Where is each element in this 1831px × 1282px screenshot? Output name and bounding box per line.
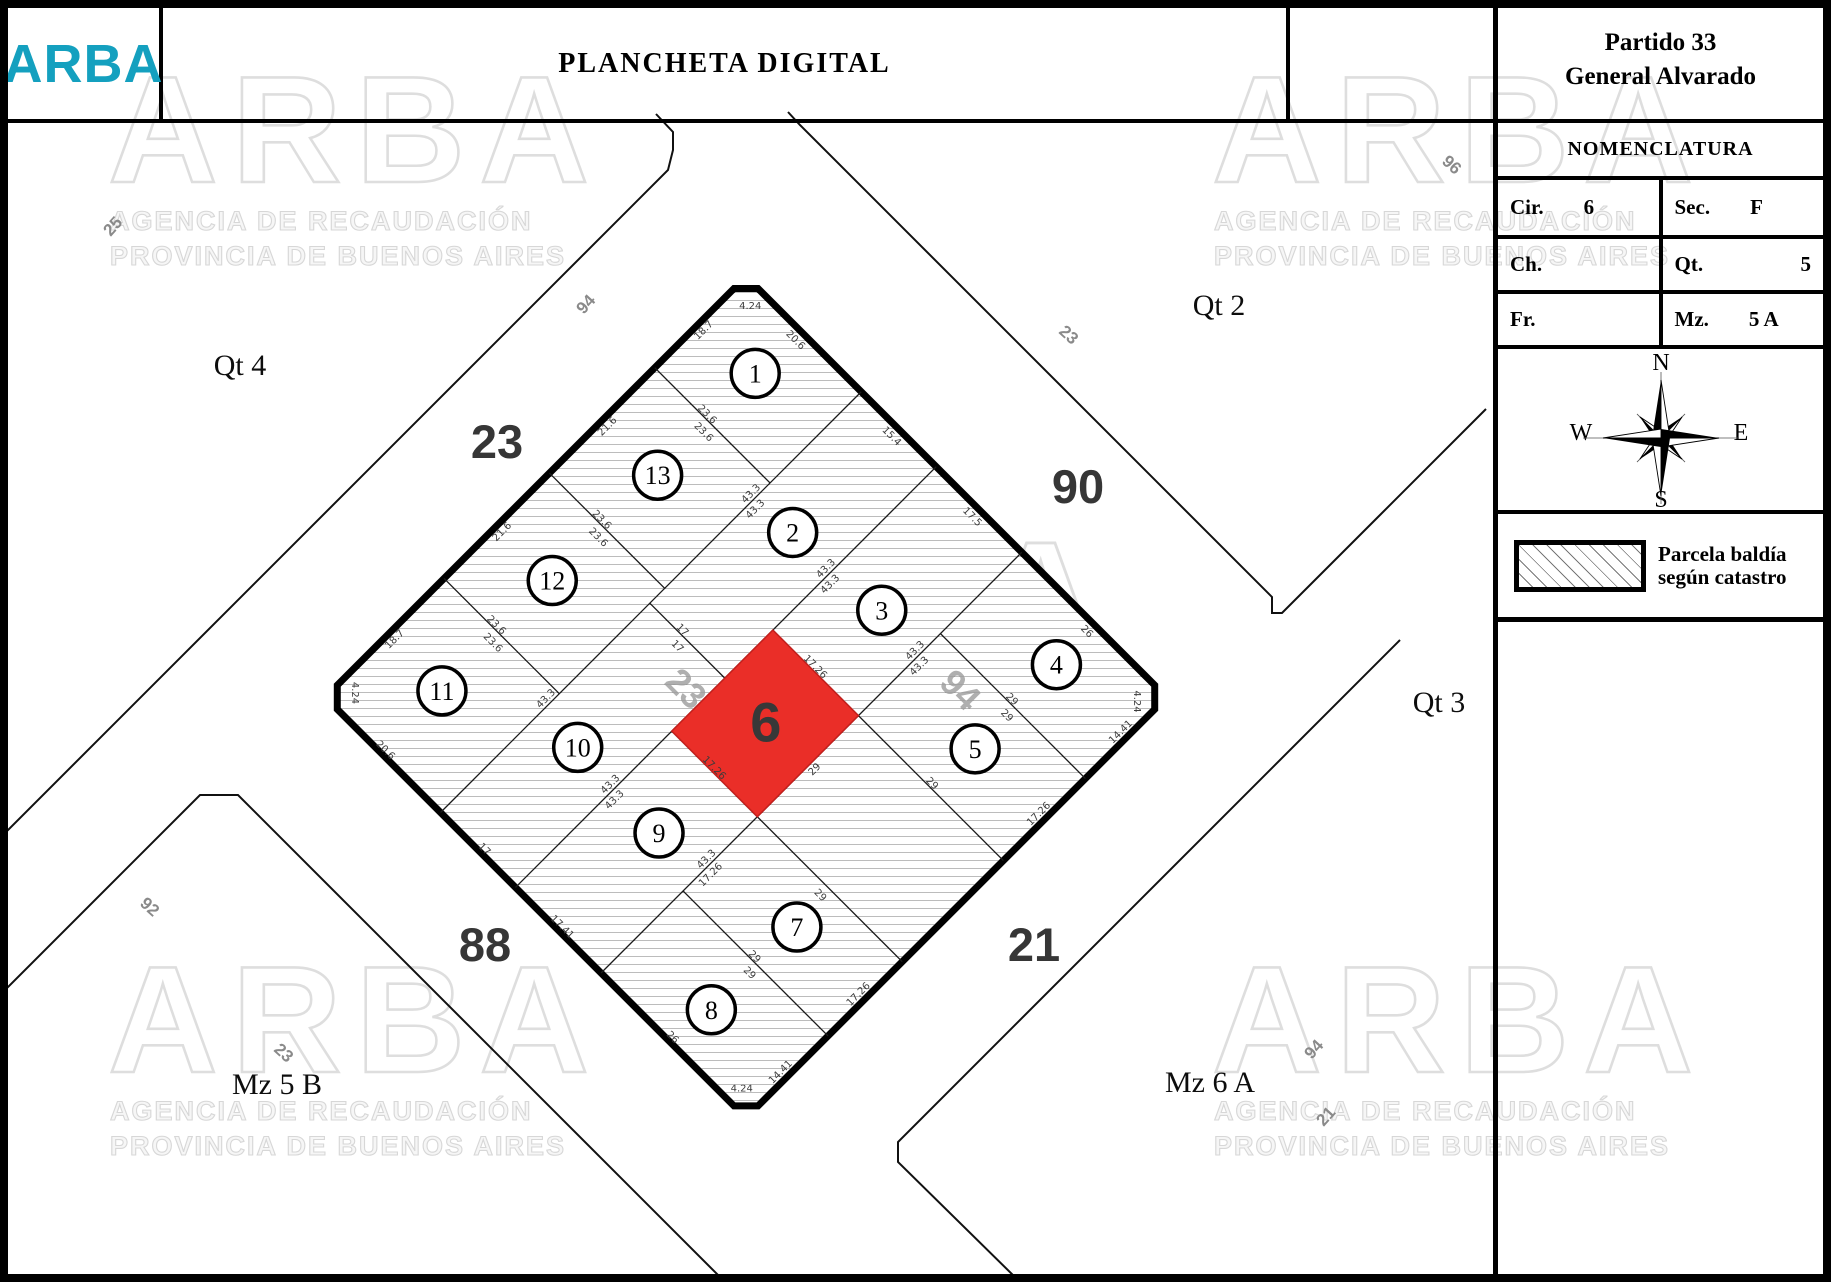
svg-text:3: 3 <box>875 596 888 625</box>
svg-text:5: 5 <box>969 735 982 764</box>
sec-value: F <box>1750 195 1763 220</box>
dimension-label: 4.24 <box>349 682 360 704</box>
street-label-92: 92 <box>136 894 163 921</box>
legend-label: Parcela baldía según catastro <box>1658 543 1787 589</box>
svg-text:13: 13 <box>645 461 671 490</box>
cir-value: 6 <box>1584 195 1595 220</box>
parcel-4: 4 <box>1032 641 1080 689</box>
svg-text:AGENCIA DE RECAUDACIÓN: AGENCIA DE RECAUDACIÓN <box>110 205 533 236</box>
svg-text:PROVINCIA DE BUENOS AIRES: PROVINCIA DE BUENOS AIRES <box>110 1131 566 1161</box>
street-number-23: 23 <box>471 415 523 468</box>
nomenclatura-table: Cir. 6 Sec. F Ch. Qt. 5 Fr. <box>1498 180 1823 349</box>
parcel-10: 10 <box>554 723 602 771</box>
parcel-2: 2 <box>769 508 817 556</box>
svg-text:2: 2 <box>786 518 799 547</box>
parcel-3: 3 <box>858 586 906 634</box>
parcel-8: 8 <box>687 986 735 1034</box>
parcel-9: 9 <box>635 809 683 857</box>
street-number-21: 21 <box>1008 918 1060 971</box>
parcel-5: 5 <box>951 725 999 773</box>
parcel-13: 13 <box>634 451 682 499</box>
page-title: PLANCHETA DIGITAL <box>558 48 890 80</box>
header-spacer <box>1290 8 1493 123</box>
sidebar-panel: Partido 33 General Alvarado NOMENCLATURA… <box>1493 8 1823 1274</box>
nomenclatura-header: NOMENCLATURA <box>1498 123 1823 180</box>
svg-text:9: 9 <box>653 819 666 848</box>
street-label-94: 94 <box>573 291 600 318</box>
cell-mz: Mz. 5 A <box>1659 290 1824 345</box>
svg-text:ARBA: ARBA <box>108 935 603 1105</box>
table-row: Cir. 6 Sec. F <box>1498 180 1823 235</box>
arba-logo: ARBA <box>4 33 164 95</box>
vacant-parcel-hatch-swatch <box>1514 540 1646 592</box>
street-number-90: 90 <box>1052 460 1104 513</box>
cell-ch: Ch. <box>1498 235 1659 290</box>
partido-line2: General Alvarado <box>1498 60 1823 94</box>
table-row: Fr. Mz. 5 A <box>1498 290 1823 345</box>
title-bar: PLANCHETA DIGITAL <box>163 8 1290 123</box>
compass-w: W <box>1569 420 1592 446</box>
svg-text:PROVINCIA DE BUENOS AIRES: PROVINCIA DE BUENOS AIRES <box>110 241 566 271</box>
partido-line1: Partido 33 <box>1498 26 1823 60</box>
svg-text:10: 10 <box>565 733 591 762</box>
dimension-label: 4.24 <box>731 1083 753 1094</box>
parcel-12: 12 <box>528 557 576 605</box>
svg-text:1: 1 <box>749 359 762 388</box>
dimension-label: 4.24 <box>739 301 761 312</box>
arba-logo-box: ARBA <box>8 8 163 123</box>
mz-value: 5 A <box>1749 307 1779 332</box>
partido-box: Partido 33 General Alvarado <box>1498 8 1823 123</box>
svg-text:7: 7 <box>790 913 803 942</box>
svg-text:12: 12 <box>539 567 565 596</box>
area-label-mz-6-a: Mz 6 A <box>1165 1066 1255 1099</box>
parcel-1: 1 <box>731 349 779 397</box>
street-number-88: 88 <box>459 918 511 971</box>
table-row: Ch. Qt. 5 <box>1498 235 1823 290</box>
parcel-6-number: 6 <box>750 690 781 753</box>
svg-text:4: 4 <box>1050 651 1063 680</box>
street-label-23: 23 <box>1055 322 1082 349</box>
dimension-label: 4.24 <box>1131 690 1142 712</box>
svg-text:11: 11 <box>429 677 454 706</box>
compass-rose: N S W E <box>1511 350 1811 510</box>
parcel-11: 11 <box>418 667 466 715</box>
cell-fr: Fr. <box>1498 290 1659 345</box>
area-label-qt-3: Qt 3 <box>1413 686 1466 719</box>
parcel-7: 7 <box>773 903 821 951</box>
compass-box: N S W E <box>1498 349 1823 514</box>
area-label-qt-4: Qt 4 <box>214 349 267 382</box>
svg-text:8: 8 <box>705 996 718 1025</box>
cell-cir: Cir. 6 <box>1498 180 1659 235</box>
qt-value: 5 <box>1801 252 1812 277</box>
cell-sec: Sec. F <box>1659 180 1824 235</box>
area-label-qt-2: Qt 2 <box>1193 289 1246 322</box>
legend-box: Parcela baldía según catastro <box>1498 514 1823 622</box>
compass-e: E <box>1733 420 1748 446</box>
arba-watermark: ARBAAGENCIA DE RECAUDACIÓNPROVINCIA DE B… <box>108 935 603 1161</box>
area-label-mz-5-b: Mz 5 B <box>232 1068 322 1101</box>
cell-qt: Qt. 5 <box>1659 235 1824 290</box>
